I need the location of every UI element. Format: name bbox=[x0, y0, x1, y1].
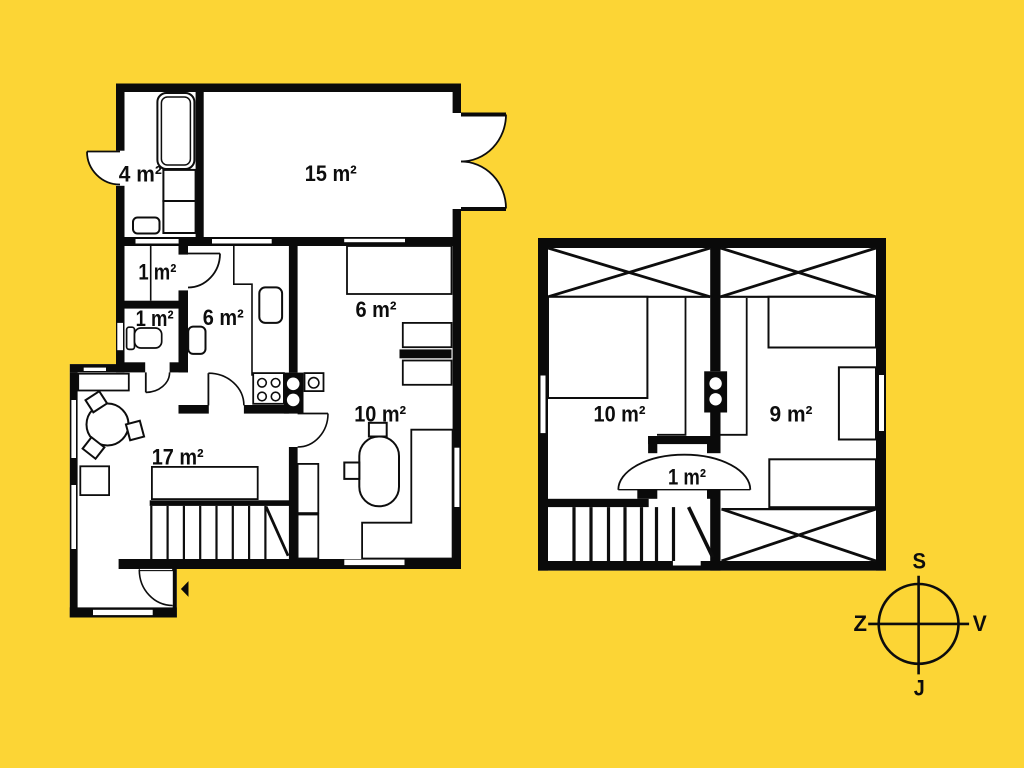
svg-text:6 m²: 6 m² bbox=[356, 297, 397, 322]
svg-text:10 m²: 10 m² bbox=[594, 402, 646, 427]
svg-text:10 m²: 10 m² bbox=[354, 401, 406, 426]
svg-text:V: V bbox=[973, 611, 987, 636]
svg-text:1 m²: 1 m² bbox=[668, 465, 706, 490]
svg-text:S: S bbox=[912, 549, 926, 574]
svg-text:9 m²: 9 m² bbox=[770, 402, 813, 427]
svg-text:15 m²: 15 m² bbox=[305, 161, 357, 186]
svg-text:4 m²: 4 m² bbox=[119, 161, 162, 186]
svg-text:17 m²: 17 m² bbox=[152, 444, 204, 469]
svg-text:J: J bbox=[914, 676, 925, 701]
svg-text:1 m²: 1 m² bbox=[136, 306, 174, 331]
svg-text:6 m²: 6 m² bbox=[203, 305, 244, 330]
svg-text:Z: Z bbox=[853, 611, 867, 636]
svg-text:1 m²: 1 m² bbox=[138, 259, 176, 284]
